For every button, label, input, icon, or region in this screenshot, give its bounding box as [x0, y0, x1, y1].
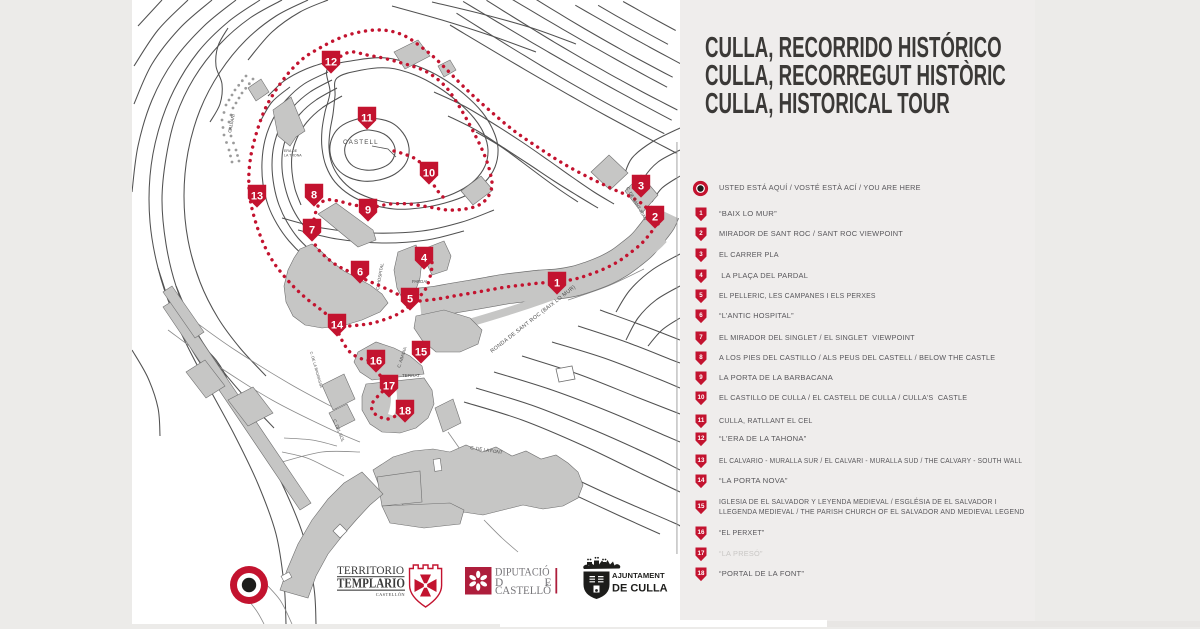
svg-text:8: 8 [699, 353, 703, 360]
svg-text:17: 17 [697, 549, 704, 556]
svg-text:DE CULLA: DE CULLA [612, 583, 668, 595]
svg-text:PARDAL: PARDAL [412, 279, 429, 284]
svg-text:1: 1 [554, 277, 560, 289]
svg-text:LA TRONA: LA TRONA [284, 154, 302, 158]
svg-text:4: 4 [421, 252, 428, 264]
svg-text:CASTELLÓ: CASTELLÓ [495, 585, 551, 597]
svg-text:9: 9 [365, 204, 371, 216]
svg-text:7: 7 [699, 333, 703, 340]
svg-text:11: 11 [361, 112, 373, 124]
svg-text:14: 14 [331, 319, 344, 331]
svg-text:12: 12 [697, 434, 704, 441]
svg-text:16: 16 [697, 529, 704, 536]
svg-text:5: 5 [407, 293, 413, 305]
svg-text:14: 14 [697, 476, 704, 483]
svg-text:AJUNTAMENT: AJUNTAMENT [612, 571, 665, 580]
svg-text:ERA DE: ERA DE [284, 149, 298, 153]
svg-text:C. DE LA BAGRASSA: C. DE LA BAGRASSA [309, 351, 323, 389]
svg-text:11: 11 [697, 416, 704, 423]
svg-text:6: 6 [699, 311, 703, 318]
svg-text:3: 3 [638, 180, 644, 192]
svg-text:10: 10 [423, 167, 435, 179]
svg-text:1: 1 [699, 210, 703, 217]
svg-text:TEMPLARIO: TEMPLARIO [337, 576, 405, 591]
svg-text:16: 16 [370, 355, 382, 367]
svg-text:15: 15 [697, 503, 704, 510]
svg-text:C. HOSPITAL: C. HOSPITAL [375, 262, 385, 290]
svg-text:CALVARI: CALVARI [227, 114, 236, 134]
svg-text:18: 18 [399, 405, 411, 417]
svg-text:13: 13 [251, 190, 263, 202]
svg-text:18: 18 [697, 569, 704, 576]
svg-text:13: 13 [697, 456, 704, 463]
svg-text:10: 10 [697, 393, 704, 400]
svg-text:12: 12 [325, 56, 337, 68]
svg-text:17: 17 [383, 380, 395, 392]
svg-text:4: 4 [699, 271, 703, 278]
svg-text:5: 5 [699, 291, 703, 298]
svg-text:2: 2 [652, 211, 658, 223]
svg-text:2: 2 [699, 230, 703, 237]
svg-text:CASTELL: CASTELL [343, 139, 379, 146]
svg-text:TERRAT.: TERRAT. [402, 373, 421, 378]
svg-text:15: 15 [415, 346, 427, 358]
svg-text:7: 7 [309, 224, 315, 236]
svg-text:3: 3 [699, 250, 703, 257]
svg-text:9: 9 [699, 373, 703, 380]
svg-text:CASTELLÓN: CASTELLÓN [376, 592, 406, 597]
svg-text:6: 6 [357, 266, 363, 278]
svg-text:8: 8 [311, 189, 317, 201]
